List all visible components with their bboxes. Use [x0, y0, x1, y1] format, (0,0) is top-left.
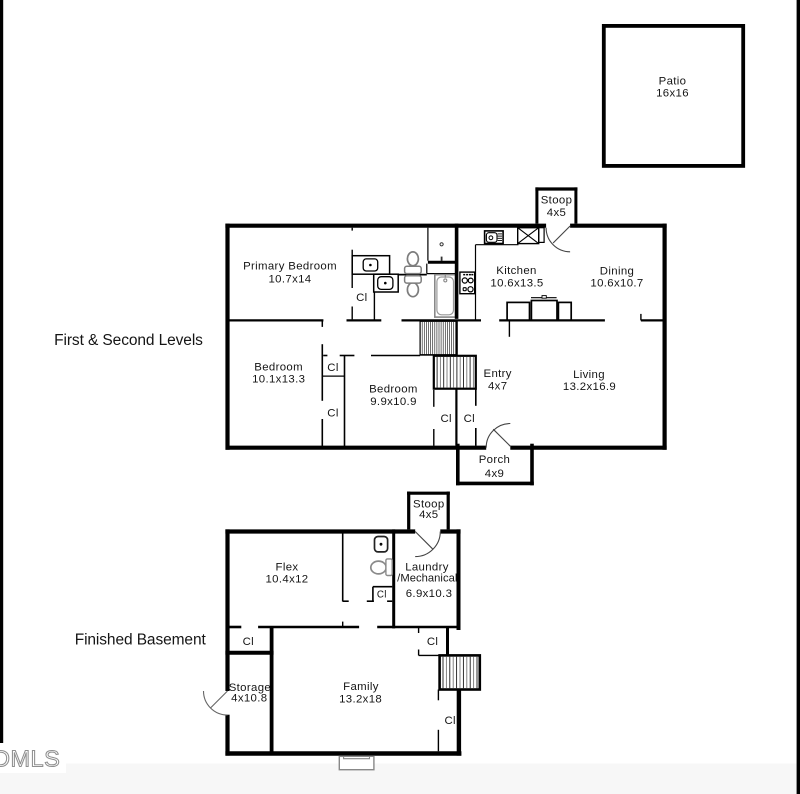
svg-text:10.1x13.3: 10.1x13.3: [252, 374, 305, 386]
svg-text:First & Second Levels: First & Second Levels: [54, 332, 203, 349]
svg-text:DMLS: DMLS: [0, 746, 60, 772]
svg-text:10.7x14: 10.7x14: [269, 274, 312, 286]
svg-text:10.4x12: 10.4x12: [266, 574, 309, 586]
svg-text:Kitchen: Kitchen: [496, 265, 536, 277]
svg-text:Primary Bedroom: Primary Bedroom: [243, 260, 337, 272]
svg-text:9.9x10.9: 9.9x10.9: [370, 396, 417, 408]
svg-text:Living: Living: [573, 369, 605, 381]
svg-text:Porch: Porch: [479, 454, 511, 466]
svg-text:10.6x13.5: 10.6x13.5: [490, 277, 543, 289]
svg-text:Cl: Cl: [377, 590, 387, 601]
svg-text:Cl: Cl: [427, 636, 438, 648]
svg-text:Cl: Cl: [440, 413, 451, 425]
svg-text:Finished Basement: Finished Basement: [75, 632, 207, 649]
svg-text:Entry: Entry: [484, 368, 512, 380]
svg-text:Patio: Patio: [659, 75, 687, 87]
svg-text:Family: Family: [343, 681, 379, 693]
svg-text:Bedroom: Bedroom: [254, 362, 303, 374]
svg-text:4x9: 4x9: [485, 468, 504, 480]
svg-text:Cl: Cl: [444, 715, 455, 727]
svg-text:13.2x18: 13.2x18: [339, 694, 382, 706]
svg-text:4x10.8: 4x10.8: [231, 693, 267, 705]
svg-text:Cl: Cl: [243, 636, 254, 648]
svg-text:Cl: Cl: [356, 292, 367, 304]
svg-text:16x16: 16x16: [656, 87, 689, 99]
svg-text:13.2x16.9: 13.2x16.9: [563, 381, 616, 393]
svg-text:Cl: Cl: [327, 362, 338, 374]
svg-text:10.6x10.7: 10.6x10.7: [590, 278, 643, 290]
svg-text:4x5: 4x5: [419, 509, 438, 521]
svg-text:Cl: Cl: [327, 408, 338, 420]
svg-text:Cl: Cl: [464, 413, 475, 425]
svg-text:/Mechanical: /Mechanical: [397, 573, 457, 585]
svg-text:4x5: 4x5: [547, 207, 566, 219]
svg-text:Dining: Dining: [600, 265, 634, 277]
svg-text:4x7: 4x7: [488, 381, 507, 393]
svg-text:6.9x10.3: 6.9x10.3: [406, 588, 453, 600]
svg-text:Bedroom: Bedroom: [369, 383, 418, 395]
svg-text:Stoop: Stoop: [541, 194, 573, 206]
svg-text:Flex: Flex: [276, 561, 299, 573]
